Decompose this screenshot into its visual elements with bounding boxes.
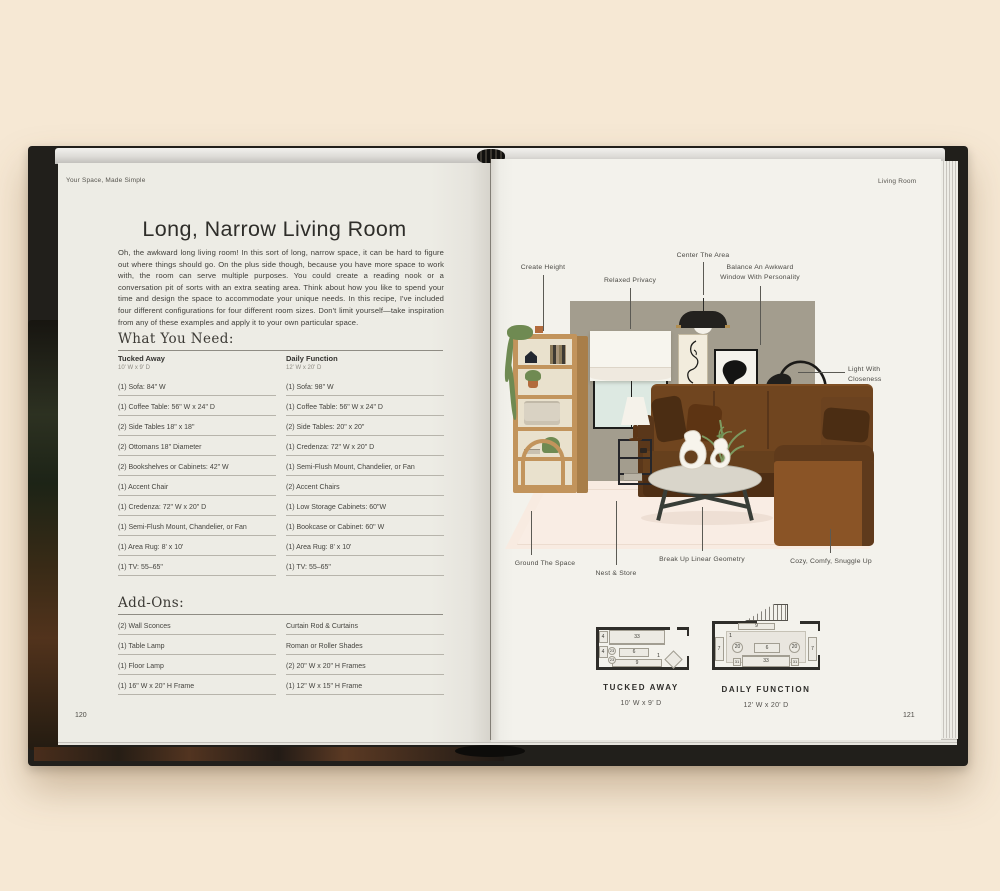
list-item: (1) Coffee Table: 56" W x 24" D [286, 396, 444, 416]
column-daily-function: Daily Function 12' W x 20' D (1) Sofa: 9… [286, 354, 444, 576]
column-dimensions: 10' W x 9' D [118, 365, 276, 371]
sectional-corner-side [862, 461, 874, 546]
plan-coffee-table: 6 [619, 648, 649, 657]
plan-credenza: 9 [612, 659, 662, 667]
addons-column-1: (2) Wall Sconces (1) Table Lamp (1) Floo… [118, 615, 276, 695]
column-dimensions: 12' W x 20' D [286, 365, 444, 371]
annotation-line [616, 501, 617, 565]
shade-fold [590, 367, 671, 381]
list-item: (1) Accent Chair [118, 476, 276, 496]
plan-caption: DAILY FUNCTION [706, 685, 826, 694]
table-lamp-foot [629, 438, 642, 441]
list-item: (1) 16" W x 20" H Frame [118, 675, 276, 695]
book-stack [624, 473, 642, 481]
intro-paragraph: Oh, the awkward long living room! In thi… [118, 247, 444, 328]
annotation-break-up-linear-geometry: Break Up Linear Geometry [652, 555, 752, 565]
plant-pot [535, 326, 543, 333]
annotation-balance-window: Balance An Awkward Window With Personali… [718, 263, 802, 283]
annotation-nest-and-store: Nest & Store [581, 569, 651, 579]
annotation-center-the-area: Center The Area [668, 251, 738, 261]
list-item: (2) Bookshelves or Cabinets: 42" W [118, 456, 276, 476]
plan-cabinet: 7 [808, 637, 817, 661]
books [550, 345, 566, 364]
list-item: (1) Area Rug: 8' x 10' [118, 536, 276, 556]
shelf-board [518, 427, 572, 431]
column-tucked-away: Tucked Away 10' W x 9' D (1) Sofa: 84" W… [118, 354, 276, 576]
plan-cabinet: 7 [715, 637, 724, 661]
annotation-light-with-closeness: Light With Closeness [848, 365, 890, 385]
book-photo-canvas: { "book": { "left_running_header": "Your… [0, 0, 1000, 891]
annotation-line [543, 275, 544, 331]
annotation-relaxed-privacy: Relaxed Privacy [595, 276, 665, 286]
section-heading-what-you-need: What You Need: [118, 331, 234, 347]
list-item: (1) Sofa: 84" W [118, 376, 276, 396]
sectional-corner-front [774, 461, 874, 546]
mug [640, 448, 647, 453]
pendant-light [679, 311, 727, 328]
book-cover-bottom-edge [34, 747, 504, 761]
roman-shade [590, 331, 671, 381]
list-item: (1) Area Rug: 8' x 10' [286, 536, 444, 556]
annotation-cozy-comfy-snuggle-up: Cozy, Comfy, Snuggle Up [786, 557, 876, 567]
plan-ottoman: 23 [608, 647, 616, 655]
running-header-left: Your Space, Made Simple [66, 177, 146, 184]
list-item: (1) TV: 55–65" [286, 556, 444, 576]
sculpture [525, 351, 537, 363]
plant [525, 370, 541, 381]
list-item: (1) Semi-Flush Mount, Chandelier, or Fan [286, 456, 444, 476]
bookshelf [513, 334, 588, 493]
plan-credenza: 9 [738, 623, 775, 630]
list-item: (1) Semi-Flush Mount, Chandelier, or Fan [118, 516, 276, 536]
plan-sofa: 33 [742, 655, 790, 667]
list-item: (2) 20" W x 20" H Frames [286, 655, 444, 675]
list-item: (1) TV: 55–65" [118, 556, 276, 576]
column-title: Daily Function [286, 354, 444, 363]
list-item: (1) Credenza: 72" W x 20" D [286, 436, 444, 456]
pendant-gold-accent [676, 325, 681, 328]
list-item: (2) Accent Chairs [286, 476, 444, 496]
sculptural-vases [674, 425, 736, 480]
bookshelf-interior [518, 339, 572, 485]
list-item: (1) Table Lamp [118, 635, 276, 655]
addons-column-2: Curtain Rod & Curtains Roman or Roller S… [286, 615, 444, 695]
list-item: (1) Coffee Table: 56" W x 24" D [118, 396, 276, 416]
list-item: (2) Wall Sconces [118, 615, 276, 635]
plan-side-table: 31 [733, 658, 741, 666]
annotation-line [630, 288, 631, 329]
page-number-right: 121 [903, 712, 915, 719]
list-item: (1) Floor Lamp [118, 655, 276, 675]
plan-accent-chair: 20 [789, 642, 800, 653]
plan-accent-chair: 20 [732, 642, 743, 653]
list-item: (2) Side Tables: 20" x 20" [286, 416, 444, 436]
basket [524, 401, 560, 425]
living-room-illustration: Create Height Relaxed Privacy Center The… [491, 159, 941, 740]
plan-caption: TUCKED AWAY [581, 683, 701, 692]
list-item: (2) Side Tables 18" x 18" [118, 416, 276, 436]
list-item: Curtain Rod & Curtains [286, 615, 444, 635]
list-item: (1) Sofa: 98" W [286, 376, 444, 396]
annotation-line [830, 529, 831, 553]
list-item: (2) Ottomans 18" Diameter [118, 436, 276, 456]
left-page: Your Space, Made Simple Long, Narrow Liv… [58, 163, 491, 742]
plan-accent-chair [664, 650, 682, 668]
section-heading-add-ons: Add-Ons: [118, 595, 184, 611]
plan-dimensions: 10' W x 9' D [581, 700, 701, 707]
annotation-line [798, 372, 845, 373]
list-item: Roman or Roller Shades [286, 635, 444, 655]
annotation-line [760, 286, 761, 345]
annotation-line [531, 511, 532, 555]
sofa-seam [767, 391, 769, 449]
table-shelf [620, 457, 650, 459]
list-item: (1) Bookcase or Cabinet: 60" W [286, 516, 444, 536]
table-lamp-base [633, 425, 638, 439]
nesting-side-table [618, 439, 652, 485]
book-cover-photo-edge [28, 320, 60, 750]
list-item: (1) Low Storage Cabinets: 60"W [286, 496, 444, 516]
section-rule [118, 350, 443, 351]
list-item: (1) Credenza: 72" W x 20" D [118, 496, 276, 516]
column-title: Tucked Away [118, 354, 276, 363]
book-spine [490, 159, 491, 740]
plan-side-table: 4 [599, 631, 608, 643]
page-title: Long, Narrow Living Room [88, 217, 461, 242]
list-item: (1) 12" W x 15" H Frame [286, 675, 444, 695]
plan-dimensions: 12' W x 20' D [706, 702, 826, 709]
right-page: Living Room [491, 159, 941, 740]
arch-detail [521, 439, 565, 485]
plan-sofa: 33 [609, 630, 665, 645]
plan-stairs [745, 604, 788, 621]
plan-label: 1 [657, 653, 660, 659]
pendant-gold-accent [725, 325, 730, 328]
shelf-board [518, 395, 572, 399]
plan-side-table: 31 [791, 658, 799, 666]
plan-side-table: 4 [599, 646, 608, 658]
bookshelf-side [577, 336, 588, 493]
page-stack-right [941, 161, 958, 739]
annotation-line [702, 507, 703, 551]
plan-ottoman: 23 [608, 656, 616, 664]
annotation-create-height: Create Height [508, 263, 578, 273]
throw-pillow [822, 407, 871, 443]
plan-rug-label: 1 [729, 633, 732, 639]
plan-coffee-table: 6 [754, 643, 780, 653]
annotation-ground-the-space: Ground The Space [510, 559, 580, 569]
shelf-board [518, 365, 572, 369]
page-number-left: 120 [75, 712, 87, 719]
spine-notch [455, 745, 525, 757]
annotation-line [703, 262, 704, 295]
